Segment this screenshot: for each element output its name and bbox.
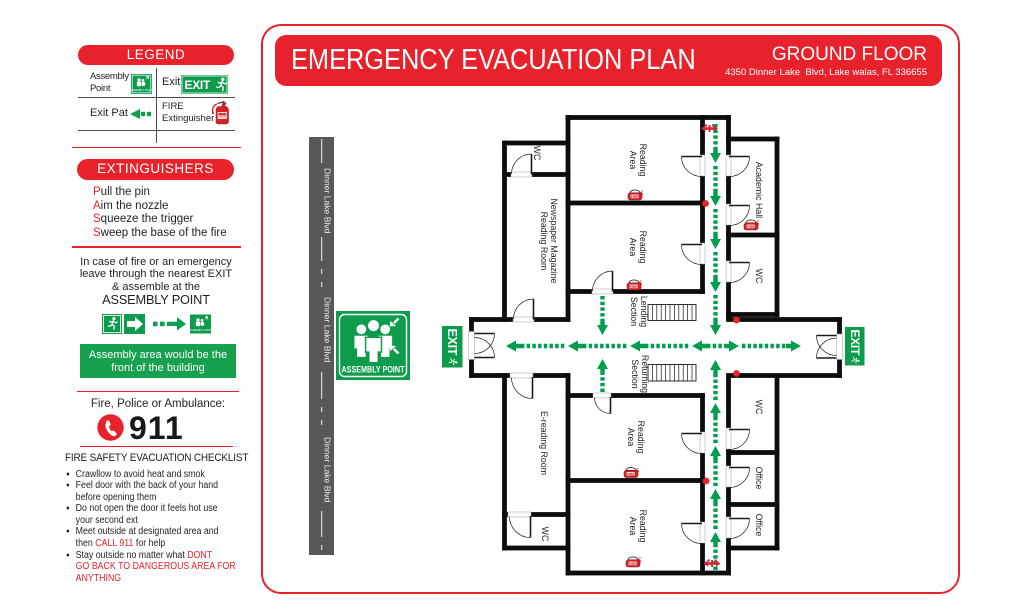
svg-text:E-reading Room: E-reading Room [539, 411, 549, 475]
svg-text:Area: Area [628, 517, 638, 536]
svg-text:WC: WC [754, 269, 764, 284]
svg-text:Area: Area [626, 428, 636, 447]
svg-text:Academic Hall: Academic Hall [754, 162, 764, 218]
svg-text:Reading: Reading [636, 421, 646, 454]
svg-text:Lending: Lending [639, 296, 649, 327]
svg-text:Reading Room: Reading Room [539, 212, 549, 271]
svg-text:Area: Area [628, 238, 638, 257]
svg-text:Returning: Returning [640, 355, 650, 393]
svg-text:Reading: Reading [638, 231, 648, 264]
svg-text:Section: Section [630, 359, 640, 388]
svg-text:Reading: Reading [638, 510, 648, 543]
svg-text:WC: WC [532, 146, 542, 161]
svg-text:Reading: Reading [638, 144, 648, 177]
svg-text:EXIT: EXIT [848, 330, 862, 356]
svg-text:Section: Section [629, 297, 639, 326]
svg-text:Office: Office [754, 514, 764, 537]
svg-text:EXIT: EXIT [445, 329, 459, 356]
svg-text:Newspaper Magazine: Newspaper Magazine [549, 198, 559, 283]
svg-text:Office: Office [754, 467, 764, 490]
svg-text:WC: WC [540, 527, 550, 542]
svg-text:Area: Area [628, 151, 638, 170]
svg-text:WC: WC [754, 400, 764, 415]
